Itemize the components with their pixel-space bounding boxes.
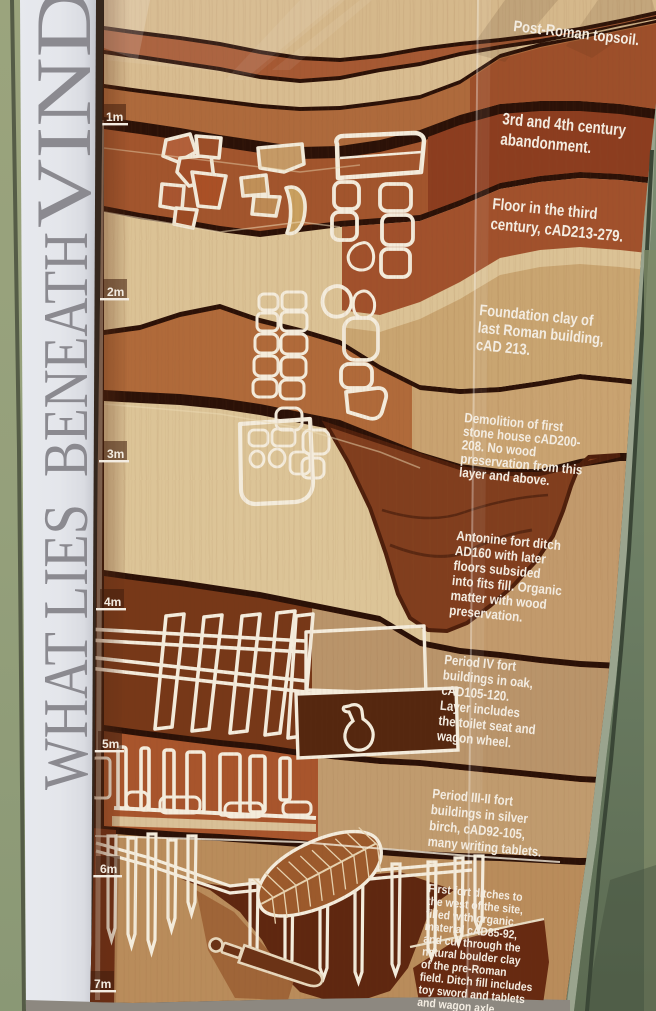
svg-text:5m: 5m (102, 737, 119, 751)
svg-text:4m: 4m (104, 595, 121, 609)
svg-text:7m: 7m (94, 977, 111, 991)
svg-text:BENEATH: BENEATH (30, 232, 101, 477)
svg-text:WHAT LIES: WHAT LIES (30, 504, 101, 790)
svg-text:1m: 1m (106, 110, 123, 124)
svg-text:2m: 2m (107, 285, 124, 299)
svg-text:6m: 6m (100, 862, 117, 876)
svg-text:3m: 3m (107, 447, 124, 461)
svg-text:VIND: VIND (20, 0, 107, 228)
